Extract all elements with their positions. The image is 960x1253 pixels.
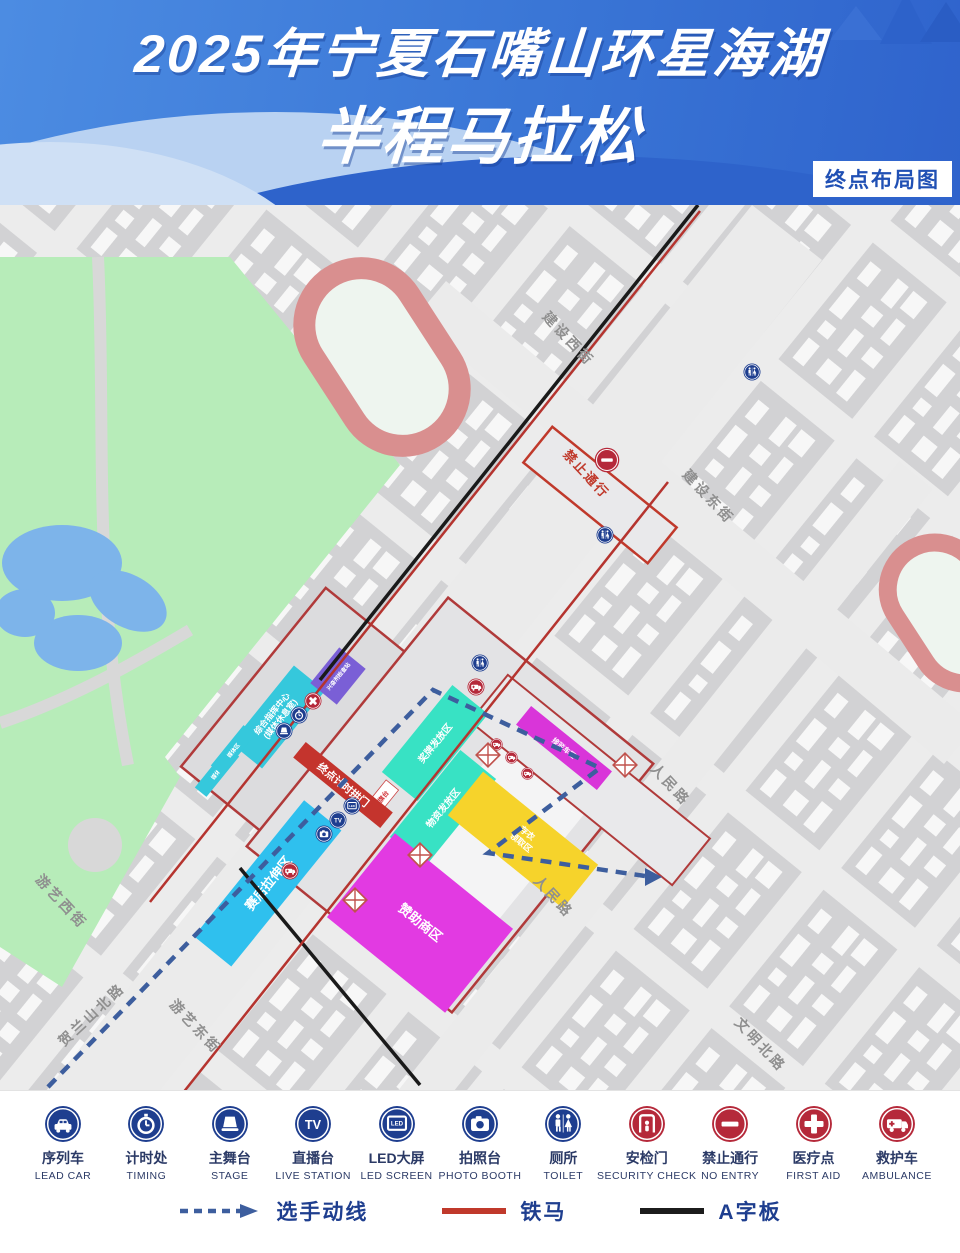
poster-header: 2025年宁夏石嘴山环星海湖 半程马拉松 终点布局图 bbox=[0, 0, 960, 205]
first-aid-icon bbox=[795, 1105, 833, 1143]
legend-label-zh: 序列车 bbox=[42, 1148, 84, 1168]
legend-line-label: A字板 bbox=[718, 1196, 781, 1226]
led-screen-icon bbox=[344, 798, 361, 815]
legend-item-led-screen: LED大屏 LED SCREEN bbox=[356, 1105, 438, 1182]
legend-label-en: SECURITY CHECK bbox=[597, 1170, 697, 1182]
legend-label-zh: 主舞台 bbox=[209, 1148, 251, 1168]
stage-icon bbox=[276, 723, 293, 740]
legend-label-en: LED SCREEN bbox=[361, 1170, 433, 1182]
legend-label-zh: 禁止通行 bbox=[702, 1148, 758, 1168]
legend-label-zh: 直播台 bbox=[292, 1148, 334, 1168]
live-station-icon bbox=[294, 1105, 332, 1143]
toilet-icon bbox=[544, 1105, 582, 1143]
timing-icon bbox=[127, 1105, 165, 1143]
a-board-line-icon bbox=[640, 1208, 704, 1214]
photo-booth-icon bbox=[461, 1105, 499, 1143]
legend-item-stage: 主舞台 STAGE bbox=[189, 1105, 271, 1182]
legend-icons-row: 序列车 LEAD CAR 计时处 TIMING 主舞台 STAGE 直播台 LI… bbox=[0, 1091, 960, 1182]
finish-area-map: TV LED bbox=[0, 205, 960, 1090]
legend-label-en: PHOTO BOOTH bbox=[439, 1170, 522, 1182]
legend-label-en: AMBULANCE bbox=[862, 1170, 932, 1182]
legend-item-timing: 计时处 TIMING bbox=[105, 1105, 187, 1182]
legend-label-en: TOILET bbox=[544, 1170, 584, 1182]
legend-label-zh: 拍照台 bbox=[459, 1148, 501, 1168]
legend-item-first-aid: 医疗点 FIRST AID bbox=[773, 1105, 855, 1182]
live-station-icon bbox=[330, 812, 347, 829]
legend-label-zh: 救护车 bbox=[876, 1148, 918, 1168]
legend-label-en: LIVE STATION bbox=[275, 1170, 351, 1182]
legend-item-lead-car: 序列车 LEAD CAR bbox=[22, 1105, 104, 1182]
no-entry-icon bbox=[711, 1105, 749, 1143]
legend-label-en: STAGE bbox=[211, 1170, 248, 1182]
dashed-route-icon bbox=[178, 1202, 262, 1220]
legend-item-no-entry: 禁止通行 NO ENTRY bbox=[689, 1105, 771, 1182]
led-screen-icon bbox=[378, 1105, 416, 1143]
toilet-icon bbox=[597, 527, 614, 544]
legend-label-en: FIRST AID bbox=[786, 1170, 840, 1182]
legend-label-zh: 安检门 bbox=[626, 1148, 668, 1168]
legend-line-label: 选手动线 bbox=[276, 1196, 368, 1226]
ambulance-icon bbox=[468, 679, 485, 696]
legend-label-zh: 计时处 bbox=[125, 1148, 167, 1168]
toilet-icon bbox=[472, 655, 489, 672]
legend-runner-route: 选手动线 bbox=[178, 1196, 368, 1226]
map-type-badge: 终点布局图 bbox=[813, 161, 952, 197]
legend-label-zh: LED大屏 bbox=[369, 1148, 425, 1168]
legend-a-board: A字板 bbox=[640, 1196, 781, 1226]
legend-barrier: 铁马 bbox=[442, 1196, 566, 1226]
legend: 序列车 LEAD CAR 计时处 TIMING 主舞台 STAGE 直播台 LI… bbox=[0, 1090, 960, 1253]
shuttle-vehicle-icon bbox=[505, 751, 517, 763]
park-plaza bbox=[68, 818, 122, 872]
legend-item-photo-booth: 拍照台 PHOTO BOOTH bbox=[439, 1105, 521, 1182]
legend-label-en: TIMING bbox=[127, 1170, 167, 1182]
photo-booth-icon bbox=[316, 826, 333, 843]
timing-icon bbox=[291, 707, 308, 724]
toilet-icon bbox=[744, 364, 761, 381]
legend-line-label: 铁马 bbox=[520, 1196, 566, 1226]
lead-car-icon bbox=[44, 1105, 82, 1143]
legend-label-en: NO ENTRY bbox=[701, 1170, 759, 1182]
legend-item-security-check: 安检门 SECURITY CHECK bbox=[606, 1105, 688, 1182]
legend-item-ambulance: 救护车 AMBULANCE bbox=[856, 1105, 938, 1182]
no-entry-icon bbox=[595, 448, 620, 473]
legend-label-zh: 医疗点 bbox=[793, 1148, 835, 1168]
stage-icon bbox=[211, 1105, 249, 1143]
security-check-icon bbox=[628, 1105, 666, 1143]
legend-item-live-station: 直播台 LIVE STATION bbox=[272, 1105, 354, 1182]
ambulance-icon bbox=[282, 863, 299, 880]
legend-item-toilet: 厕所 TOILET bbox=[522, 1105, 604, 1182]
legend-label-zh: 厕所 bbox=[549, 1148, 577, 1168]
event-title-line1: 2025年宁夏石嘴山环星海湖 bbox=[0, 12, 960, 88]
ambulance-icon bbox=[878, 1105, 916, 1143]
shuttle-vehicle-icon bbox=[521, 767, 533, 779]
barrier-line-icon bbox=[442, 1208, 506, 1214]
poster: 2025年宁夏石嘴山环星海湖 半程马拉松 终点布局图 bbox=[0, 0, 960, 1253]
legend-label-en: LEAD CAR bbox=[35, 1170, 92, 1182]
legend-lines-row: 选手动线 铁马 A字板 bbox=[0, 1196, 960, 1226]
